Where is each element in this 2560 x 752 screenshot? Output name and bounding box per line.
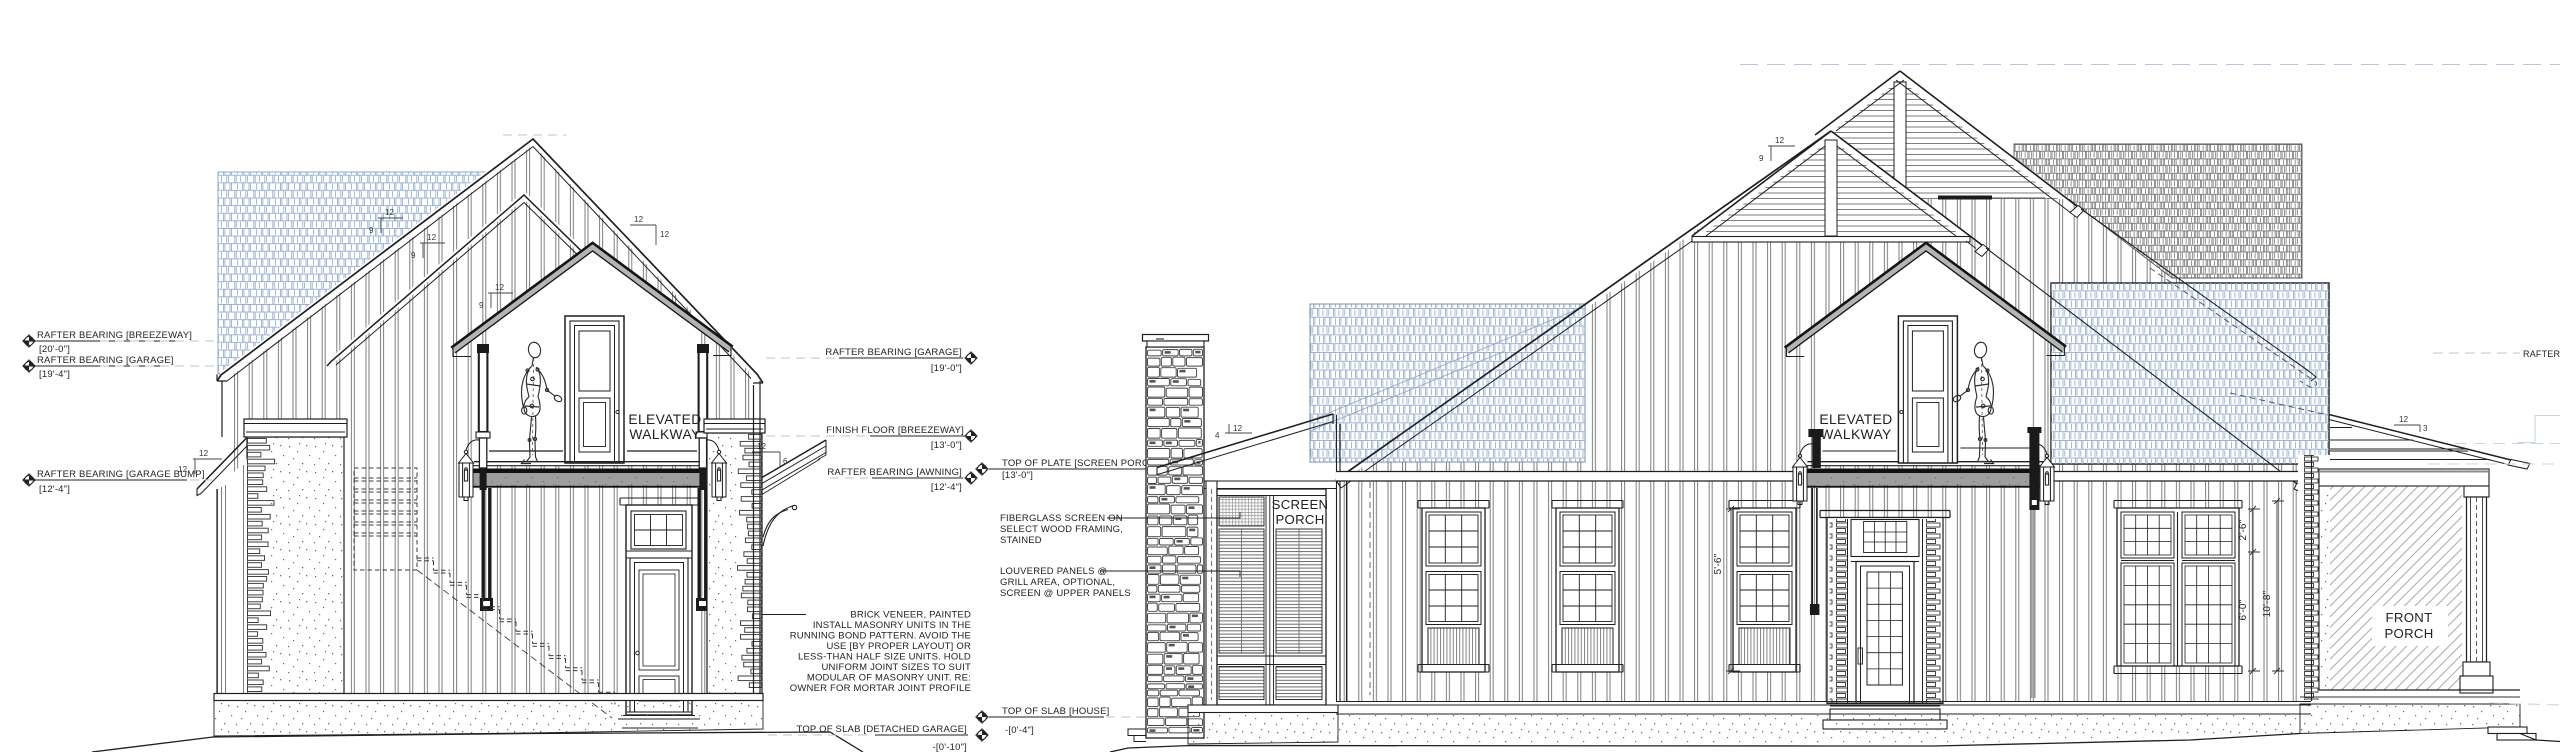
svg-text:12: 12 — [385, 208, 395, 217]
svg-text:USE [BY PROPER LAYOUT] OR: USE [BY PROPER LAYOUT] OR — [826, 641, 971, 652]
svg-text:GRILL AREA, OPTIONAL,: GRILL AREA, OPTIONAL, — [1000, 577, 1115, 588]
svg-text:TOP OF SLAB [HOUSE]: TOP OF SLAB [HOUSE] — [1002, 706, 1109, 717]
svg-text:9: 9 — [1759, 154, 1764, 163]
svg-text:12: 12 — [1233, 424, 1243, 433]
svg-text:[19'-0"]: [19'-0"] — [931, 363, 962, 374]
svg-text:FIBERGLASS SCREEN ON: FIBERGLASS SCREEN ON — [1000, 513, 1123, 524]
svg-text:LESS-THAN HALF SIZE UNITS. HOL: LESS-THAN HALF SIZE UNITS. HOLD — [798, 652, 971, 663]
svg-text:12: 12 — [495, 283, 505, 292]
svg-text:RAFTER BEARING [AWNING]: RAFTER BEARING [AWNING] — [827, 467, 962, 478]
svg-text:6: 6 — [783, 457, 788, 466]
svg-text:OWNER FOR MORTAR JOINT PROFILE: OWNER FOR MORTAR JOINT PROFILE — [790, 683, 971, 694]
svg-text:[13'-0"]: [13'-0"] — [1002, 470, 1033, 481]
svg-text:SCREEN @ UPPER PANELS: SCREEN @ UPPER PANELS — [1000, 588, 1131, 599]
svg-text:6'-0": 6'-0" — [2238, 599, 2249, 620]
svg-text:RUNNING BOND PATTERN. AVOID TH: RUNNING BOND PATTERN. AVOID THE — [790, 631, 971, 642]
svg-text:ELEVATED: ELEVATED — [1819, 412, 1892, 427]
svg-text:9: 9 — [369, 226, 374, 235]
svg-text:-[0'-10"]: -[0'-10"] — [933, 742, 967, 752]
svg-text:12: 12 — [427, 233, 437, 242]
svg-text:RAFTER BEARING [GARAGE]: RAFTER BEARING [GARAGE] — [825, 347, 962, 358]
svg-text:ELEVATED: ELEVATED — [628, 412, 701, 427]
svg-text:[12'-4"]: [12'-4"] — [39, 484, 70, 495]
svg-text:12: 12 — [2399, 415, 2409, 424]
svg-text:[13'-0"]: [13'-0"] — [931, 440, 962, 451]
svg-text:PORCH: PORCH — [2384, 626, 2433, 641]
svg-text:RAFTER BEARING [GARAGE]: RAFTER BEARING [GARAGE] — [37, 355, 174, 366]
svg-text:[12'-4"]: [12'-4"] — [931, 482, 962, 493]
svg-text:SELECT WOOD FRAMING,: SELECT WOOD FRAMING, — [1000, 524, 1123, 535]
svg-text:FINISH FLOOR [BREEZEWAY]: FINISH FLOOR [BREEZEWAY] — [826, 425, 964, 436]
svg-text:RAFTER S: RAFTER S — [2523, 349, 2560, 359]
svg-text:WALKWAY: WALKWAY — [629, 427, 700, 442]
svg-text:BRICK VENEER, PAINTED: BRICK VENEER, PAINTED — [850, 610, 971, 621]
svg-text:FRONT: FRONT — [2386, 610, 2433, 625]
svg-text:9: 9 — [411, 251, 416, 260]
svg-text:TOP OF PLATE [SCREEN PORCH]: TOP OF PLATE [SCREEN PORCH] — [1002, 458, 1159, 469]
svg-text:10'-8": 10'-8" — [2262, 590, 2273, 617]
svg-text:[20'-0"]: [20'-0"] — [39, 344, 70, 355]
svg-text:RAFTER BEARING [BREEZEWAY]: RAFTER BEARING [BREEZEWAY] — [37, 330, 192, 341]
svg-text:12: 12 — [634, 215, 644, 224]
svg-text:9: 9 — [479, 301, 484, 310]
svg-text:4: 4 — [1215, 431, 1220, 440]
svg-text:[19'-4"]: [19'-4"] — [39, 369, 70, 380]
svg-text:INSTALL MASONRY UNITS IN THE: INSTALL MASONRY UNITS IN THE — [813, 620, 971, 631]
svg-text:WALKWAY: WALKWAY — [1820, 427, 1891, 442]
svg-text:-[0'-4"]: -[0'-4"] — [1005, 725, 1034, 736]
svg-text:PORCH: PORCH — [1275, 512, 1324, 527]
svg-text:LOUVERED PANELS @: LOUVERED PANELS @ — [1000, 566, 1107, 577]
svg-text:12: 12 — [1775, 136, 1785, 145]
svg-text:SCREEN: SCREEN — [1272, 497, 1329, 512]
svg-text:12: 12 — [757, 442, 767, 451]
svg-text:12: 12 — [199, 449, 209, 458]
svg-text:TOP OF SLAB [DETACHED GARAGE]: TOP OF SLAB [DETACHED GARAGE] — [796, 724, 967, 735]
svg-text:RAFTER BEARING [GARAGE BUMP]: RAFTER BEARING [GARAGE BUMP] — [37, 469, 205, 480]
svg-text:5'-6": 5'-6" — [1713, 553, 1724, 574]
svg-text:MODULAR OF MASONRY UNIT. RE:: MODULAR OF MASONRY UNIT. RE: — [807, 673, 971, 684]
svg-text:2'-6": 2'-6" — [2238, 519, 2249, 540]
svg-text:STAINED: STAINED — [1000, 535, 1042, 546]
svg-text:UNIFORM JOINT SIZES TO SUIT: UNIFORM JOINT SIZES TO SUIT — [822, 662, 972, 673]
svg-text:3: 3 — [2423, 424, 2428, 433]
svg-text:12: 12 — [660, 230, 670, 239]
